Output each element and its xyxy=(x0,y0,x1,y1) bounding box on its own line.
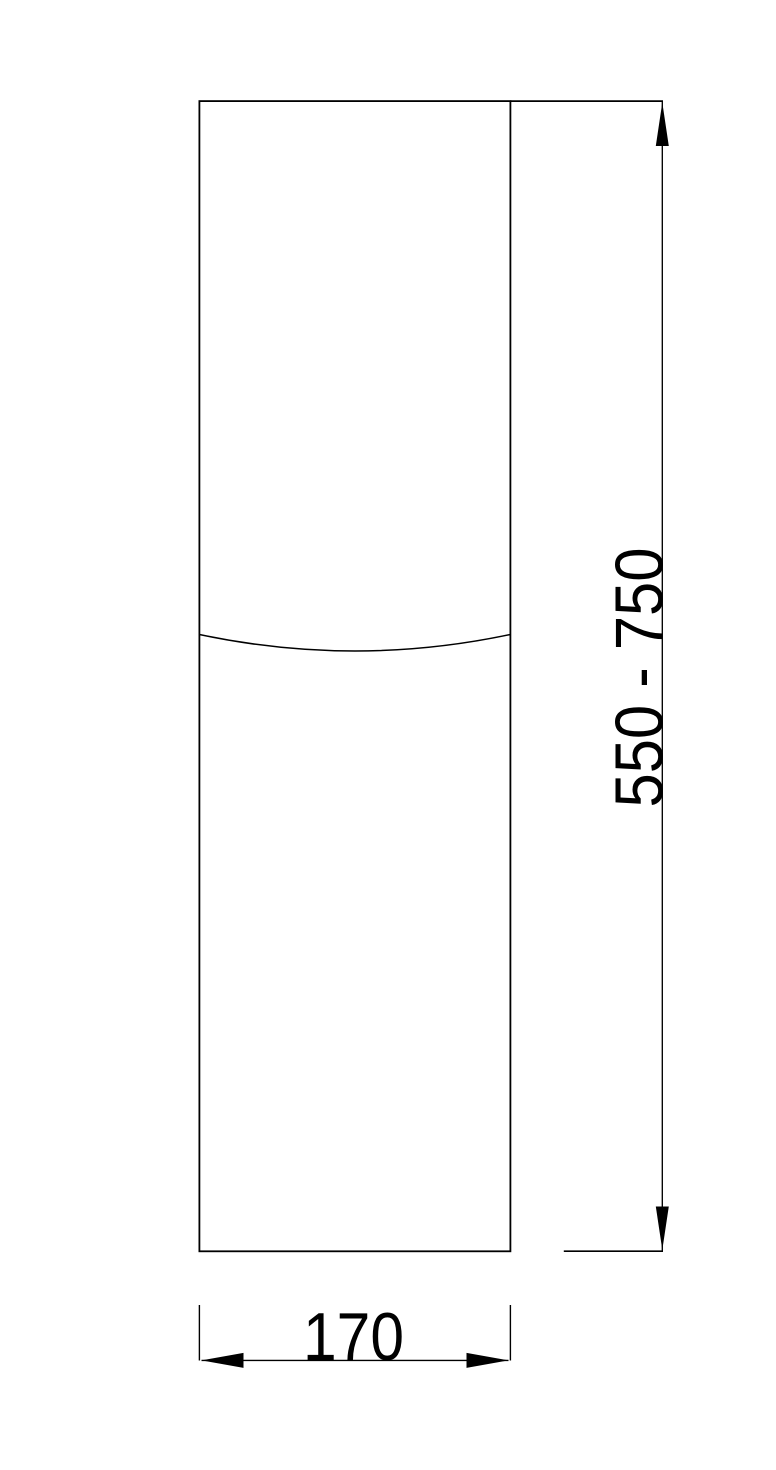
svg-text:550 - 750: 550 - 750 xyxy=(601,548,677,808)
svg-text:170: 170 xyxy=(303,1299,404,1375)
